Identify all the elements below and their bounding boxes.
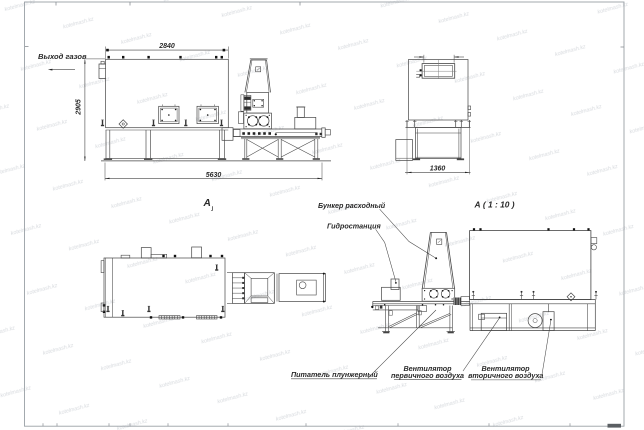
svg-text:Питатель плунжерный: Питатель плунжерный: [291, 370, 378, 379]
svg-text:2905: 2905: [76, 99, 83, 116]
svg-text:5630: 5630: [206, 172, 222, 179]
svg-text:первичного воздуха: первичного воздуха: [391, 371, 464, 380]
svg-text:1360: 1360: [430, 166, 446, 173]
svg-text:Выход газов: Выход газов: [38, 52, 87, 61]
svg-text:Гидростанция: Гидростанция: [327, 221, 382, 230]
svg-text:2840: 2840: [158, 43, 175, 50]
svg-text:А ( 1 : 10 ): А ( 1 : 10 ): [474, 199, 515, 209]
svg-text:Бункер расходный: Бункер расходный: [318, 201, 386, 210]
svg-text:А: А: [203, 198, 211, 209]
svg-text:вторичного воздуха: вторичного воздуха: [468, 371, 543, 380]
